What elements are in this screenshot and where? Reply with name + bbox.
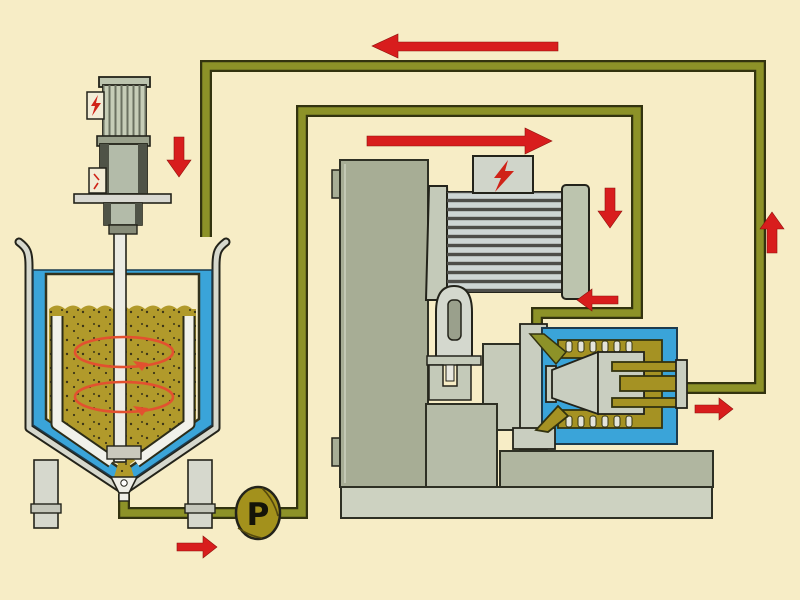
circulation-pump: P bbox=[236, 487, 280, 539]
agitator-gearbox-rib bbox=[138, 144, 147, 194]
mill-grinding-chamber bbox=[513, 324, 687, 449]
agitator-shaft bbox=[114, 200, 126, 462]
mill-outlet-gap bbox=[612, 362, 686, 371]
machine-column bbox=[340, 160, 428, 487]
agitator-junction-box-lower bbox=[89, 168, 106, 193]
mill-motor-ribs bbox=[447, 192, 563, 292]
mill-outlet-flange bbox=[676, 360, 687, 408]
agitator-motor-ribs bbox=[103, 85, 146, 138]
coupling-slot bbox=[448, 300, 461, 340]
shaft-pin bbox=[446, 365, 454, 381]
coupling-flange bbox=[427, 356, 481, 365]
process-diagram: P bbox=[0, 0, 800, 600]
diagram-canvas: P bbox=[0, 0, 800, 600]
machine-pedestal bbox=[426, 404, 497, 487]
mill-motor-end-cap bbox=[562, 185, 589, 299]
mill-outlet-gap bbox=[612, 398, 686, 407]
agitator-hub bbox=[107, 446, 141, 459]
tank-mount-plate bbox=[74, 194, 171, 203]
machine-base-upper bbox=[500, 451, 713, 487]
machine-base-slab bbox=[341, 487, 712, 518]
agitator-seal bbox=[109, 225, 137, 234]
pump-label: P bbox=[247, 497, 270, 533]
